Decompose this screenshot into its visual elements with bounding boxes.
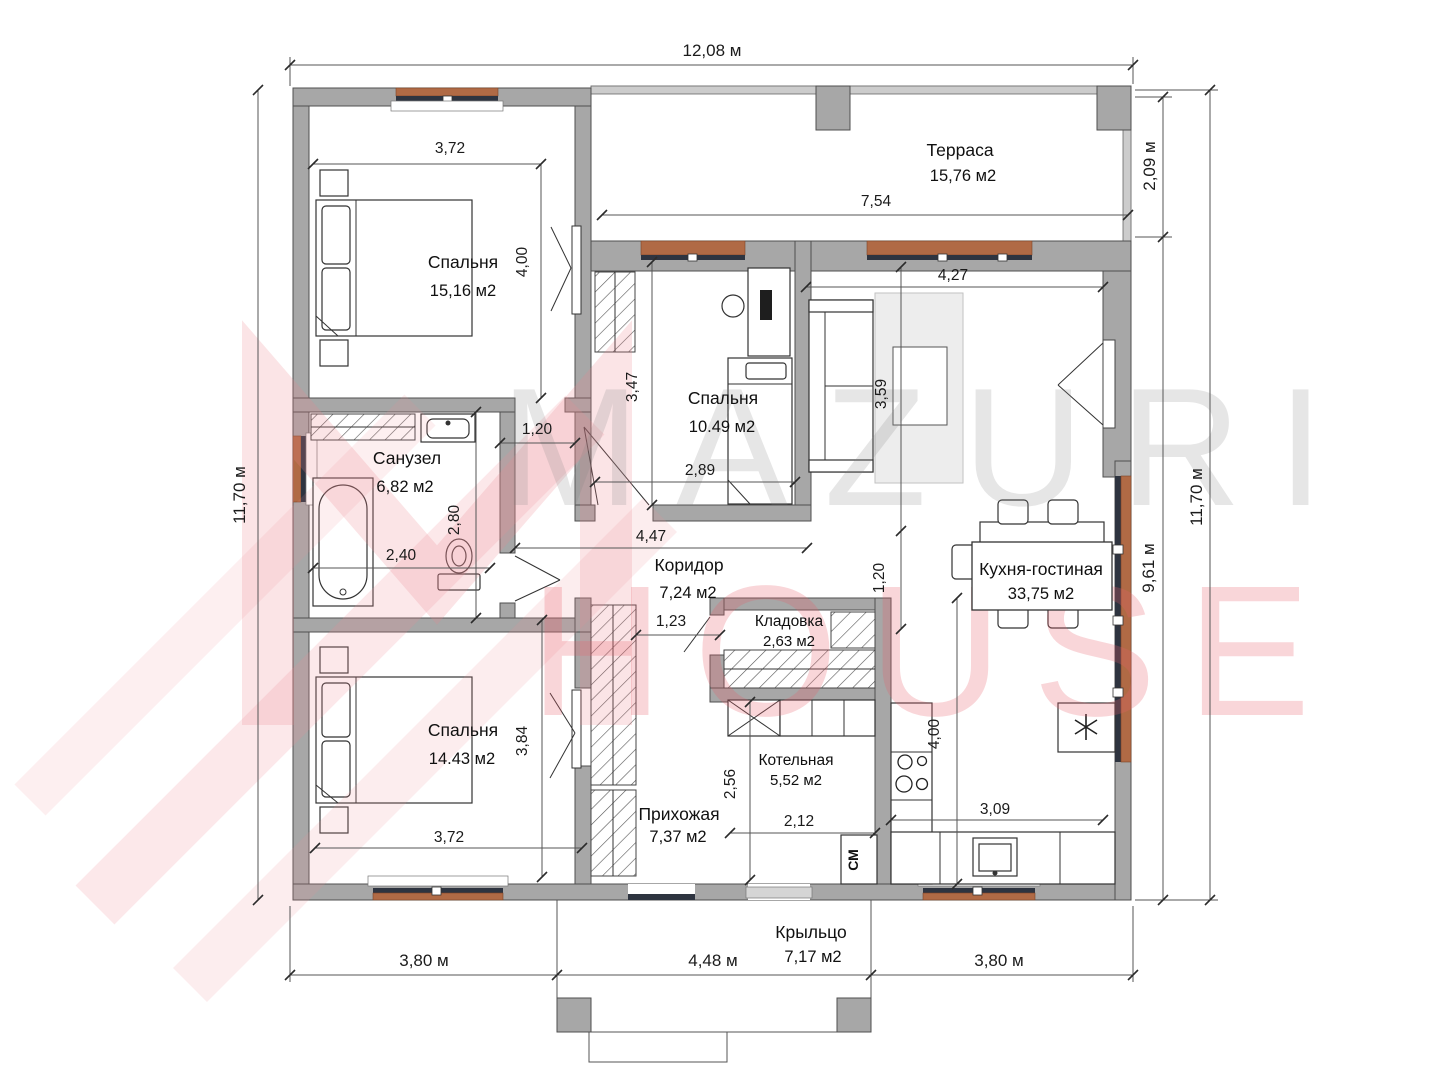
terrace-column [816, 86, 850, 130]
desk-icon [748, 268, 790, 356]
porch-pillar [837, 998, 871, 1032]
room-area-kitchen: 33,75 м2 [1008, 585, 1074, 603]
room-area-boiler: 5,52 м2 [770, 772, 822, 789]
dim-right-lower: 9,61 м [1139, 543, 1158, 593]
window-terrace-wall-2 [867, 241, 1032, 261]
dim-bedroom2-width: 2,89 [685, 462, 715, 479]
room-area-bathroom: 6,82 м2 [376, 478, 433, 496]
terrace-top-edge [591, 86, 1131, 94]
exterior-door-boiler [746, 884, 812, 900]
room-label-terrace: Терраса [926, 140, 993, 160]
washing-machine-label: СМ [845, 849, 861, 871]
nightstand-icon [320, 170, 348, 196]
window-bedroom3-bottom [368, 876, 508, 900]
room-area-porch: 7,17 м2 [784, 948, 841, 966]
room-label-bathroom: Санузел [373, 448, 441, 468]
dim-bedroom1-width: 3,72 [435, 140, 465, 157]
dim-bottom-center: 4,48 м [688, 951, 738, 970]
room-label-pantry: Кладовка [755, 613, 824, 630]
dim-corridor-length: 4,47 [636, 528, 666, 545]
dim-right-terrace: 2,09 м [1140, 141, 1159, 191]
dim-corridor-width: 1,23 [656, 613, 686, 630]
dim-nook-width: 1,20 [522, 421, 553, 438]
dim-bedroom3-height: 3,84 [514, 726, 531, 757]
dim-boiler-height: 2,56 [722, 769, 739, 799]
room-label-boiler: Котельная [758, 752, 833, 769]
dim-right-total: 11,70 м [1187, 468, 1206, 526]
dim-kitchen-lower-height: 4,00 [926, 719, 943, 750]
room-label-hallway: Прихожая [638, 804, 719, 824]
room-label-porch: Крыльцо [775, 922, 846, 942]
bathroom-east-wall-lower [500, 603, 515, 618]
room-area-terrace: 15,76 м2 [930, 167, 996, 185]
room-label-corridor: Коридор [654, 555, 723, 575]
porch-step [589, 1032, 727, 1062]
room-area-hallway: 7,37 м2 [649, 828, 706, 846]
dim-bathroom-height: 2,80 [446, 505, 463, 536]
dim-bottom-right: 3,80 м [974, 951, 1024, 970]
terrace-column [1097, 86, 1131, 130]
dim-bottom-left: 3,80 м [399, 951, 449, 970]
window-bedroom1-top [391, 88, 503, 111]
dim-top: 12,08 м [683, 41, 742, 60]
dim-terrace-width: 7,54 [861, 193, 892, 210]
room-area-bedroom1: 15,16 м2 [430, 282, 496, 300]
room-label-bedroom2: Спальня [688, 388, 758, 408]
room-area-pantry: 2,63 м2 [763, 633, 815, 650]
nightstand-icon [320, 340, 348, 366]
bedroom3-east-wall-lower [575, 766, 591, 884]
dim-bedroom3-width: 3,72 [434, 829, 464, 846]
dim-kitchen-counter-width: 3,09 [980, 801, 1010, 818]
chair-icon [722, 295, 744, 317]
porch-pillar [557, 998, 591, 1032]
dim-kitchen-upper-height: 3,59 [873, 379, 890, 409]
room-label-kitchen: Кухня-гостиная [979, 559, 1103, 579]
room-label-bedroom1: Спальня [428, 252, 498, 272]
dim-kitchen-top-width: 4,27 [938, 267, 968, 284]
monitor-icon [760, 290, 772, 320]
dim-kitchen-mid-height: 1,20 [871, 563, 888, 594]
dim-boiler-width: 2,12 [784, 813, 814, 830]
terrace-floor [591, 86, 1131, 241]
room-area-corridor: 7,24 м2 [659, 584, 716, 602]
entrance-door-hallway [628, 884, 695, 900]
dim-left: 11,70 м [230, 466, 249, 524]
room-label-bedroom3: Спальня [428, 720, 498, 740]
dim-bedroom2-height: 3,47 [624, 372, 641, 402]
floor-plan: MAZURI HOUSE 12,08 м 11,70 м 2,09 м 9,61… [0, 0, 1440, 1080]
kitchen-label-box: Кухня-гостиная 33,75 м2 [972, 542, 1112, 610]
room-area-bedroom2: 10.49 м2 [689, 418, 755, 436]
dim-bedroom1-height: 4,00 [514, 247, 531, 278]
dim-bathroom-width: 2,40 [386, 547, 417, 564]
kitchen-sink-icon [973, 838, 1017, 876]
room-area-bedroom3: 14.43 м2 [429, 750, 495, 768]
